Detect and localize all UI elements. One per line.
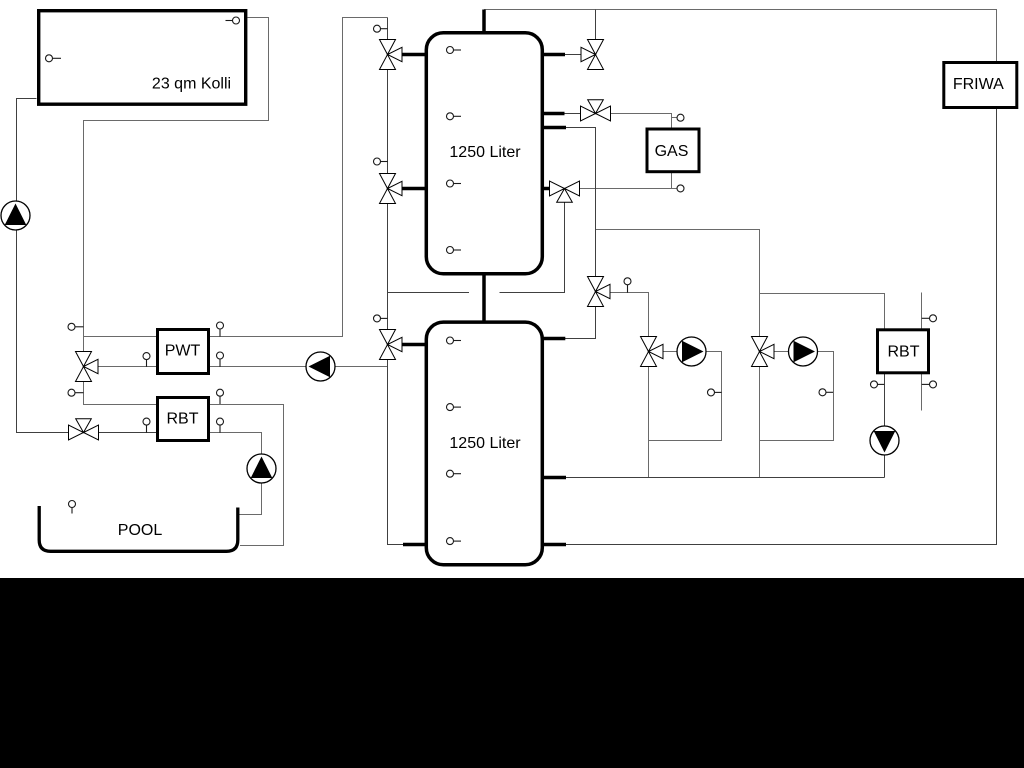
svg-text:1250 Liter: 1250 Liter	[449, 435, 521, 452]
svg-text:FRIWA: FRIWA	[953, 76, 1004, 93]
svg-text:23 qm Kolli: 23 qm Kolli	[152, 76, 231, 93]
svg-text:RBT: RBT	[167, 411, 199, 428]
svg-text:GAS: GAS	[655, 143, 689, 160]
svg-text:PWT: PWT	[165, 343, 201, 360]
svg-text:POOL: POOL	[118, 522, 163, 539]
svg-text:1250 Liter: 1250 Liter	[449, 144, 521, 161]
svg-text:RBT: RBT	[888, 344, 920, 361]
